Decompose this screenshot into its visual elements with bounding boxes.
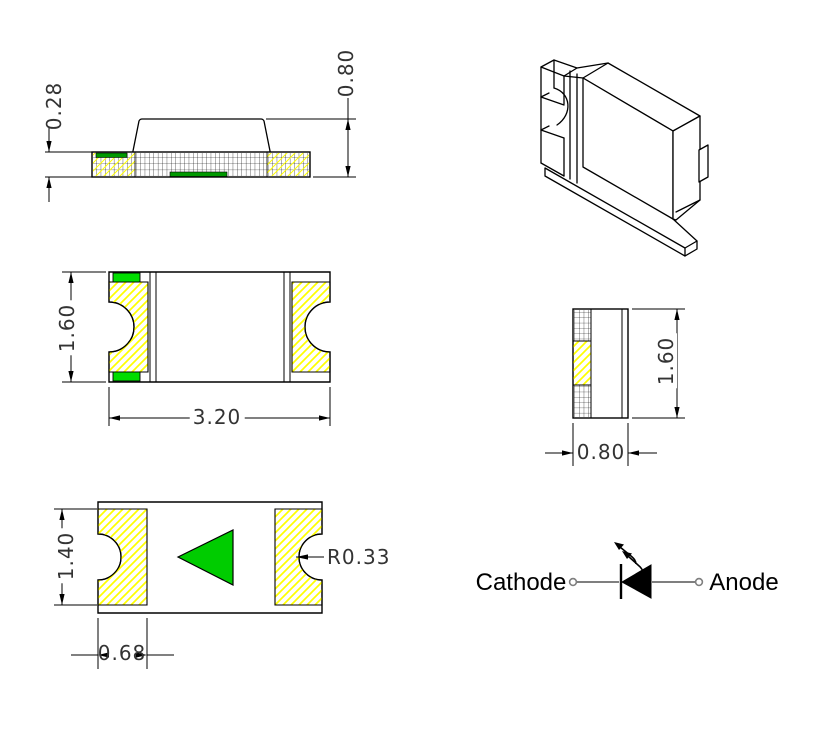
right-cap-plating	[267, 153, 309, 176]
diode-triangle	[622, 565, 651, 598]
cathode-terminal-dot	[570, 579, 577, 586]
anode-label: Anode	[709, 571, 778, 595]
led-package-drawing-sheet: 0.28 0.80 1.60 3.20 1.60 0.80 1.40 0.68 …	[0, 0, 834, 734]
dim-end-height-label: 1.60	[655, 334, 677, 389]
drawing-geometry	[0, 0, 834, 734]
dim-bottom-pad-width-label: 0.68	[98, 643, 147, 663]
bottom-view	[54, 502, 324, 669]
iso-terminal-tab	[699, 145, 708, 182]
dim-notch-radius-label: R0.33	[327, 547, 390, 567]
dim-top-length-label: 3.20	[190, 406, 245, 428]
iso-notch-arc	[554, 88, 568, 125]
led-symbol	[570, 542, 703, 599]
end-pad-hatch	[573, 341, 591, 385]
bottom-left-pad	[98, 509, 147, 605]
dim-side-height-label: 0.80	[336, 49, 356, 98]
side-green-strip-top	[96, 153, 127, 158]
iso-view	[541, 60, 708, 256]
side-green-strip-bottom	[170, 172, 227, 177]
dim-top-width-label: 1.60	[56, 301, 78, 356]
cathode-label: Cathode	[476, 571, 567, 595]
cathode-mark-bottom	[113, 372, 140, 381]
top-left-pad	[109, 282, 148, 372]
light-emission-arrows	[614, 542, 643, 573]
notch-radius-leader	[296, 554, 324, 559]
dim-end-width-label: 0.80	[577, 442, 626, 462]
anode-terminal-dot	[696, 579, 703, 586]
lens-profile	[132, 119, 271, 156]
side-view	[45, 98, 356, 202]
top-right-pad	[292, 282, 330, 372]
top-view	[62, 272, 330, 426]
dim-bottom-pad-height-label: 1.40	[55, 529, 77, 584]
dim-side-thickness-label: 0.28	[44, 82, 64, 131]
cathode-mark-top	[113, 273, 140, 282]
